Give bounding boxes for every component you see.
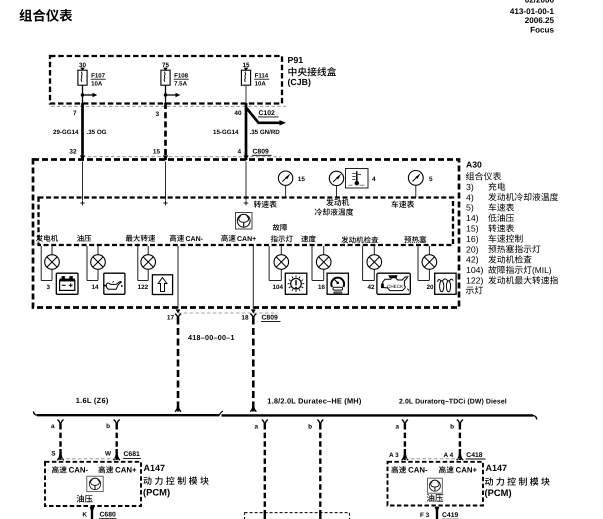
svg-text:104: 104 xyxy=(273,284,284,291)
svg-text:20: 20 xyxy=(427,284,435,291)
svg-text:(MIL): (MIL) xyxy=(532,265,552,275)
svg-text:413-01-00-1: 413-01-00-1 xyxy=(510,7,555,16)
svg-text:F107: F107 xyxy=(91,73,106,80)
svg-text:b: b xyxy=(450,424,454,431)
svg-text:4: 4 xyxy=(372,176,376,183)
svg-text:A30: A30 xyxy=(466,160,482,170)
svg-text:A 4: A 4 xyxy=(444,452,454,459)
svg-text:5): 5) xyxy=(466,203,474,213)
svg-text:CAN-: CAN- xyxy=(408,466,428,475)
svg-text:3): 3) xyxy=(466,182,474,192)
svg-text:104): 104) xyxy=(466,265,483,275)
svg-text:29-GG14: 29-GG14 xyxy=(53,129,79,136)
svg-text:F108: F108 xyxy=(174,73,189,80)
svg-text:K: K xyxy=(82,512,87,519)
svg-text:14: 14 xyxy=(92,284,100,291)
svg-text:15): 15) xyxy=(466,224,479,234)
svg-text:C809: C809 xyxy=(253,149,269,156)
svg-text:a: a xyxy=(51,423,55,430)
svg-text:15: 15 xyxy=(153,149,161,156)
svg-text:C681: C681 xyxy=(124,451,140,458)
svg-text:1.6L (Z6): 1.6L (Z6) xyxy=(76,396,109,405)
svg-text:14): 14) xyxy=(466,213,479,223)
svg-text:Focus: Focus xyxy=(530,26,554,35)
svg-text:C419: C419 xyxy=(442,512,458,519)
svg-text:CAN+: CAN+ xyxy=(456,466,478,475)
svg-text:15: 15 xyxy=(298,176,306,183)
svg-text:15-GG14: 15-GG14 xyxy=(213,129,239,136)
svg-text:A147: A147 xyxy=(486,463,508,473)
svg-text:3: 3 xyxy=(155,111,159,118)
svg-text:P91: P91 xyxy=(288,55,304,65)
svg-text:02/2006: 02/2006 xyxy=(525,0,555,5)
svg-text:C680: C680 xyxy=(100,512,116,519)
svg-text:4): 4) xyxy=(466,192,474,202)
svg-text:3: 3 xyxy=(47,284,51,291)
svg-text:b: b xyxy=(106,423,110,430)
svg-text:10A: 10A xyxy=(91,80,103,87)
svg-text:17: 17 xyxy=(167,315,175,322)
svg-text:C809: C809 xyxy=(262,315,278,322)
svg-text:122: 122 xyxy=(138,284,149,291)
svg-text:CAN-: CAN- xyxy=(69,466,89,475)
svg-text:F114: F114 xyxy=(255,73,269,80)
svg-text:4: 4 xyxy=(237,149,241,156)
svg-text:5: 5 xyxy=(429,176,433,183)
svg-text:(PCM): (PCM) xyxy=(143,486,170,497)
svg-text:418–00–00–1: 418–00–00–1 xyxy=(188,333,235,342)
svg-text:S: S xyxy=(51,451,56,458)
svg-text:16): 16) xyxy=(466,234,479,244)
svg-text:1.8/2.0L Duratec–HE (MH): 1.8/2.0L Duratec–HE (MH) xyxy=(267,397,362,406)
svg-text:16: 16 xyxy=(318,284,326,291)
svg-text:7: 7 xyxy=(73,110,77,117)
svg-text:F 3: F 3 xyxy=(420,512,430,519)
svg-text:A 3: A 3 xyxy=(389,452,399,459)
svg-text:32: 32 xyxy=(69,149,77,156)
svg-text:A147: A147 xyxy=(144,463,166,473)
svg-text:.35 GN/RD: .35 GN/RD xyxy=(250,129,281,136)
svg-text:a: a xyxy=(254,424,258,431)
svg-text:7.5A: 7.5A xyxy=(174,80,187,87)
svg-text:CAN+: CAN+ xyxy=(237,236,256,243)
svg-text:(CJB): (CJB) xyxy=(288,77,312,87)
svg-text:40: 40 xyxy=(234,110,242,117)
svg-text:CAN-: CAN- xyxy=(186,236,204,243)
svg-text:10A: 10A xyxy=(255,80,267,87)
svg-text:122): 122) xyxy=(466,276,483,286)
svg-text:.35 OG: .35 OG xyxy=(87,129,107,136)
svg-text:42): 42) xyxy=(466,255,479,265)
svg-text:20): 20) xyxy=(466,244,479,254)
svg-text:b: b xyxy=(308,424,312,431)
svg-text:2006.25: 2006.25 xyxy=(525,16,555,25)
svg-text:W: W xyxy=(105,451,112,458)
svg-text:42: 42 xyxy=(368,284,376,291)
svg-text:C102: C102 xyxy=(259,110,275,117)
svg-text:CHECK: CHECK xyxy=(387,284,404,289)
svg-text:18: 18 xyxy=(241,315,249,322)
svg-text:2.0L Duratorq–TDCi (DW) Diesel: 2.0L Duratorq–TDCi (DW) Diesel xyxy=(399,399,507,406)
svg-text:a: a xyxy=(395,424,399,431)
svg-text:C418: C418 xyxy=(466,452,482,459)
svg-text:CAN+: CAN+ xyxy=(115,466,137,475)
svg-text:(PCM): (PCM) xyxy=(485,487,512,498)
